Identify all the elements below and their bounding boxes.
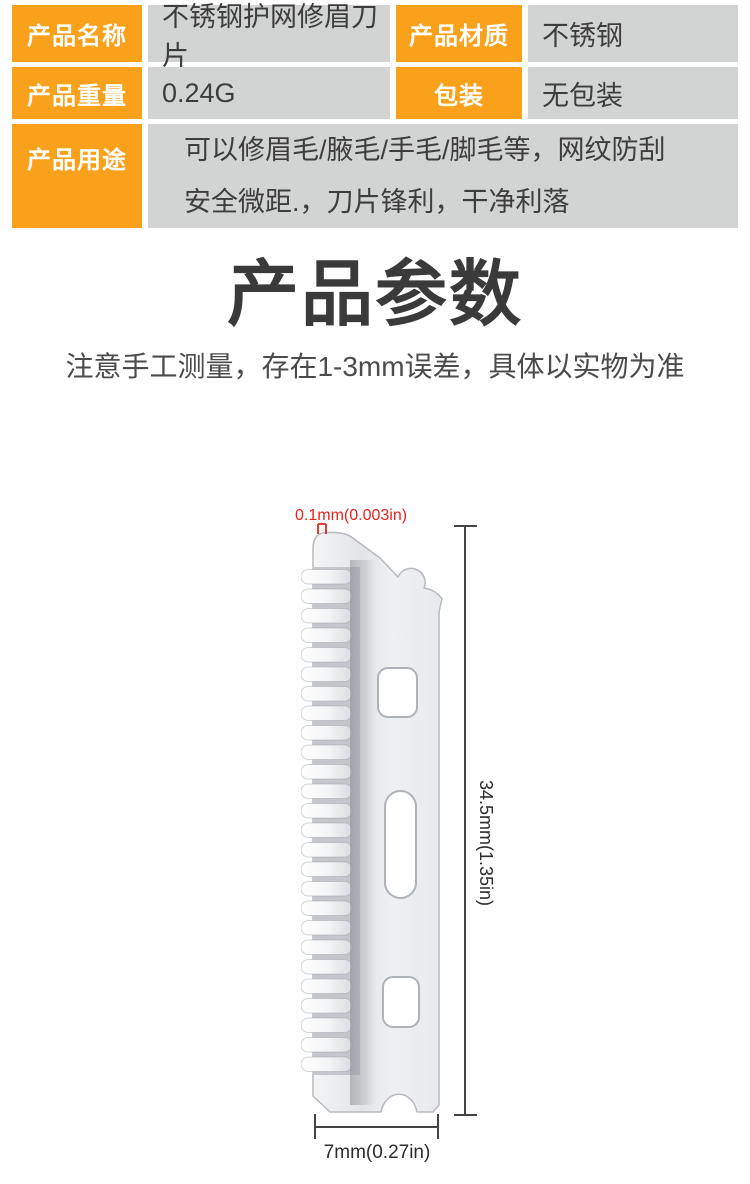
spec-value-usage: 可以修眉毛/腋毛/手毛/脚毛等，网纹防刮 安全微距.，刀片锋利，干净利落 (148, 124, 738, 228)
spec-value-product-name: 不锈钢护网修眉刀片 (148, 5, 390, 62)
dim-width-label: 7mm(0.27in) (324, 1142, 431, 1163)
measurement-note: 注意手工测量，存在1-3mm误差，具体以实物为准 (0, 347, 750, 386)
usage-line-2: 安全微距.，刀片锋利，干净利落 (184, 176, 570, 228)
dim-height-label: 34.5mm(1.35in) (476, 780, 496, 906)
product-detail-page: 产品名称 不锈钢护网修眉刀片 产品材质 不锈钢 产品重量 0.24G 包装 无包… (0, 0, 750, 1184)
section-title: 产品参数 (0, 254, 750, 337)
spec-label-usage: 产品用途 (12, 124, 142, 228)
spec-label-product-name: 产品名称 (12, 5, 142, 62)
blade-hole-bottom (383, 977, 419, 1027)
blade-hole-top (378, 668, 417, 717)
spec-label-packaging: 包装 (396, 67, 522, 119)
spec-table: 产品名称 不锈钢护网修眉刀片 产品材质 不锈钢 产品重量 0.24G 包装 无包… (12, 5, 738, 228)
spec-label-weight: 产品重量 (12, 67, 142, 119)
spec-value-weight: 0.24G (148, 67, 390, 119)
blade-illustration (301, 532, 442, 1112)
usage-line-1: 可以修眉毛/腋毛/手毛/脚毛等，网纹防刮 (184, 124, 666, 176)
dim-height-line (454, 526, 477, 1115)
spec-value-packaging: 无包装 (528, 67, 738, 119)
blade-diagram: 0.1mm(0.003in) 34.5mm(1.35in) 7mm(0.27in… (0, 480, 750, 1184)
dim-width-line (315, 1114, 438, 1139)
blade-slot-middle (385, 791, 416, 898)
spec-label-material: 产品材质 (396, 5, 522, 62)
blade-bevel-shading (350, 560, 376, 1105)
spec-value-material: 不锈钢 (528, 5, 738, 62)
blade-teeth (301, 567, 353, 1075)
dim-thickness-label: 0.1mm(0.003in) (295, 507, 407, 524)
